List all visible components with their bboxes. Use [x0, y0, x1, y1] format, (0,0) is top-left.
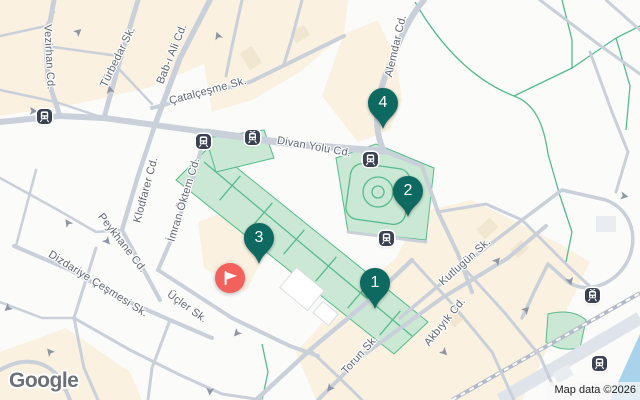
map-attribution: Map data ©2026	[547, 382, 640, 400]
map-pin-4[interactable]: 4	[366, 86, 400, 132]
pin-number: 3	[242, 228, 276, 248]
map-pin-2[interactable]: 2	[391, 174, 425, 220]
google-logo[interactable]: Google	[9, 369, 78, 393]
map-pin-1[interactable]: 1	[358, 266, 392, 312]
tram-stop-icon[interactable]	[196, 134, 211, 149]
tram-stop-icon[interactable]	[363, 152, 378, 167]
map-pin-3[interactable]: 3	[242, 221, 276, 267]
tram-stop-pantograph-icon[interactable]	[245, 130, 260, 145]
tram-stop-icon[interactable]	[37, 109, 52, 124]
flag-marker[interactable]	[215, 263, 245, 293]
pin-number: 2	[391, 181, 425, 201]
pin-number: 4	[366, 93, 400, 113]
pin-number: 1	[358, 273, 392, 293]
map-viewport[interactable]: Vezirhan Cd. Türbedar Sk. Bab-ı Ali Cd. …	[0, 0, 640, 400]
train-station-icon[interactable]	[592, 356, 607, 371]
train-station-icon[interactable]	[585, 288, 600, 303]
tram-stop-icon[interactable]	[379, 231, 394, 246]
map-canvas[interactable]	[0, 0, 640, 400]
